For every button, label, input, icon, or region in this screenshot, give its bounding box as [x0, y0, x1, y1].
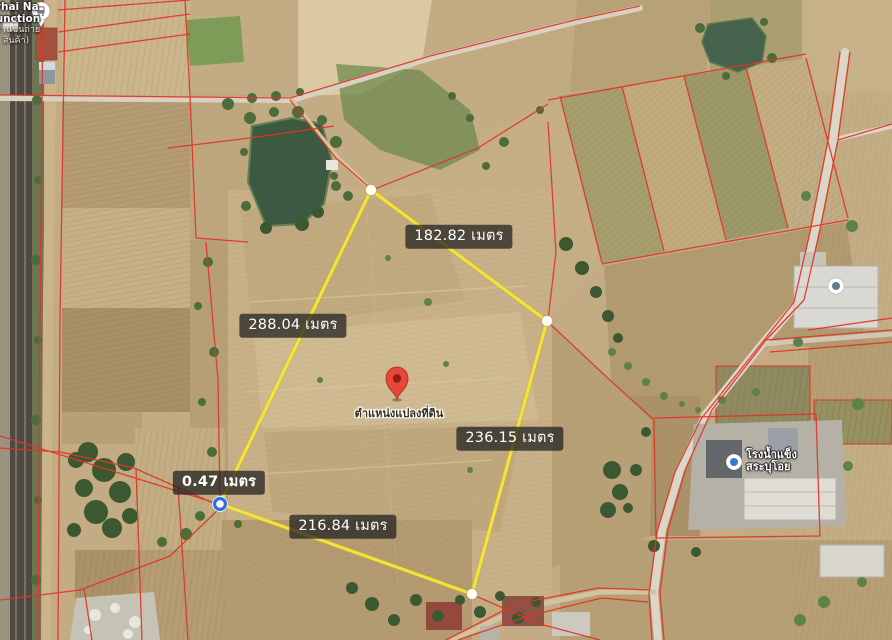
measurement-text: 236.15 เมตร	[465, 430, 554, 446]
measurement-text: 216.84 เมตร	[298, 518, 387, 534]
parcel-vertex[interactable]	[467, 589, 478, 600]
parcel-vertex[interactable]	[542, 316, 553, 327]
map-canvas	[0, 0, 892, 640]
measurement-label: 288.04 เมตร	[239, 314, 346, 338]
factory-label: โรงน้ำแข็ง สระบุโอย	[746, 449, 797, 473]
measurement-label: 0.47 เมตร	[173, 471, 265, 495]
pin-label: ตำแหน่งแปลงที่ดิน	[355, 404, 444, 422]
measurement-text: 0.47 เมตร	[182, 474, 256, 490]
factory-label-line: สระบุโอย	[746, 461, 797, 473]
station-name-line: Phai Na	[0, 1, 76, 13]
place-poi-dot	[832, 282, 840, 290]
station-label: Phai Na Junction (ลานขนถ่าย สินค้า)	[0, 1, 76, 47]
measurement-label: 182.82 เมตร	[405, 225, 512, 249]
station-sub-line: (ลานขนถ่าย	[0, 25, 76, 36]
place-poi-marker[interactable]	[828, 278, 844, 294]
business-poi-marker[interactable]	[726, 454, 742, 470]
station-sub-line: สินค้า)	[0, 36, 76, 47]
business-poi-dot	[730, 458, 738, 466]
measurement-text: 288.04 เมตร	[248, 317, 337, 333]
measurement-label: 216.84 เมตร	[289, 515, 396, 539]
station-name-line: Junction	[0, 13, 76, 25]
measurement-label: 236.15 เมตร	[456, 427, 563, 451]
parcel-vertex-selected-center	[216, 500, 224, 508]
satellite-map-view[interactable]: 182.82 เมตร 288.04 เมตร 236.15 เมตร 216.…	[0, 0, 892, 640]
parcel-vertex[interactable]	[366, 185, 377, 196]
measurement-text: 182.82 เมตร	[414, 228, 503, 244]
